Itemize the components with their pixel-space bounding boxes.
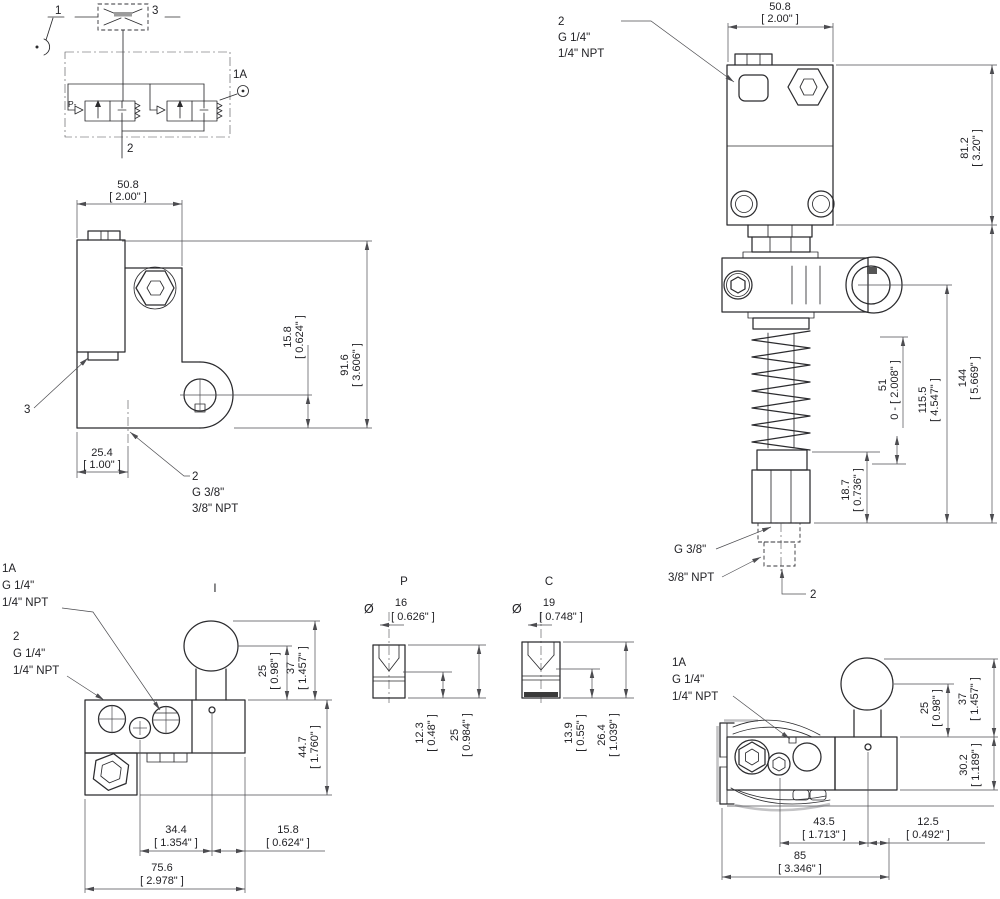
side-callout-3: 3 [24, 404, 30, 416]
rear-view: 1A G 1/4" 1/4" NPT 25 [ 0.98" ] 37 [ 1.4… [672, 657, 998, 880]
dim-front-width-mm: 50.8 [769, 1, 790, 13]
drawing-page: 1 3 P- 1A [0, 0, 1000, 899]
dim-top-ballc-mm: 25 [257, 665, 269, 677]
dim-front-total-mm: 144 [957, 369, 969, 387]
valve-body [727, 65, 833, 225]
top-callout-1a-l2: G 1/4" [2, 580, 34, 592]
dim-rear-width-in: [ 3.346" ] [778, 863, 822, 875]
schematic-item-2: 2 [127, 143, 133, 155]
dim-front-nut-mm: 18.7 [840, 479, 852, 500]
dim-c-height-mm: 26.4 [596, 724, 608, 745]
dim-c-seat-in: [ 0.55" ] [575, 714, 587, 752]
dim-top-width-mm: 75.6 [151, 862, 172, 874]
dim-c-height-in: [ 1.039" ] [608, 713, 620, 757]
dim-top-ballc-in: [ 0.98" ] [269, 652, 281, 690]
dim-side-hole-in: [ 0.624" ] [294, 315, 306, 359]
c-dia-symbol: Ø [512, 602, 522, 616]
p-port-detail: P Ø 16 [ 0.626" ] 12.3 [ 0.48" ] 25 [ 0.… [364, 576, 486, 757]
p-dia-in: [ 0.626" ] [391, 611, 435, 623]
dim-c-seat-mm: 13.9 [563, 722, 575, 743]
front-callout-2-l3: 1/4" NPT [558, 48, 604, 60]
front-port-npt38: 3/8" NPT [668, 572, 714, 584]
top-lever-label: I [213, 583, 216, 595]
dim-side-height-mm: 91.6 [339, 354, 351, 375]
dim-top-body-mm: 44.7 [297, 736, 309, 757]
dim-rear-offset-mm: 43.5 [813, 816, 834, 828]
dim-side-base-mm: 25.4 [91, 447, 112, 459]
dim-rear-ballc-in: [ 0.98" ] [931, 689, 943, 727]
hex-plug [788, 69, 828, 105]
dim-side-base-in: [ 1.00" ] [83, 459, 121, 471]
ball-knob [184, 621, 238, 671]
adjuster-nut [752, 470, 810, 523]
schematic-port-p: P- [68, 99, 77, 109]
dim-front-mid-in: [ 4.547" ] [929, 378, 941, 422]
front-callout-2b: 2 [810, 589, 816, 601]
mount-bolt-hex [136, 271, 174, 305]
side-callout-2-l3: 3/8" NPT [192, 503, 238, 515]
dim-top-width-in: [ 2.978" ] [140, 875, 184, 887]
dim-front-stroke-in: 0 - [ 2.008" ] [889, 360, 901, 420]
front-port-g38: G 3/8" [674, 544, 706, 556]
side-view: 50.8 [ 2.00" ] 91.6 [ 3.606" ] 15.8 [ 0.… [24, 179, 372, 515]
key-notch [867, 267, 877, 274]
side-callout-2-l1: 2 [192, 471, 198, 483]
hydraulic-schematic: 1 3 P- 1A [36, 4, 249, 158]
dim-p-height-mm: 25 [449, 729, 461, 741]
dim-front-width-in: [ 2.00" ] [761, 13, 799, 25]
throttle-bar [114, 12, 132, 17]
rear-callout-1a-l1: 1A [672, 657, 686, 669]
c-label: C [545, 576, 553, 588]
rear-port [793, 743, 821, 771]
dim-top-edge-mm: 15.8 [277, 824, 298, 836]
top-callout-2-l1: 2 [13, 631, 19, 643]
dim-side-width-in: [ 2.00" ] [109, 191, 147, 203]
assembly-boundary [65, 52, 230, 137]
dim-front-total-in: [ 5.669" ] [969, 356, 981, 400]
dim-side-height-in: [ 3.606" ] [351, 343, 363, 387]
dim-front-mid-mm: 115.5 [917, 387, 929, 414]
dim-p-height-in: [ 0.984" ] [461, 713, 473, 757]
dim-rear-ballt-mm: 37 [957, 693, 969, 705]
seal-band [524, 692, 558, 697]
dim-p-seat-in: [ 0.48" ] [426, 714, 438, 752]
side-callout-2-l2: G 3/8" [192, 487, 224, 499]
spring [752, 331, 810, 450]
port-plug-square [739, 75, 768, 101]
bottom-hex-plug [92, 751, 130, 792]
dim-side-hole-mm: 15.8 [282, 326, 294, 347]
top-view: 1A G 1/4" 1/4" NPT 2 G 1/4" 1/4" NPT I 2… [2, 563, 332, 893]
top-callout-2-l3: 1/4" NPT [13, 665, 59, 677]
mount-washer [134, 267, 176, 309]
dim-rear-ballt-in: [ 1.457" ] [969, 677, 981, 721]
dim-rear-offset-in: [ 1.713" ] [802, 829, 846, 841]
dim-rear-pin-mm: 12.5 [917, 816, 938, 828]
dim-front-nut-in: [ 0.736" ] [852, 468, 864, 512]
dim-rear-body-mm: 30.2 [958, 754, 970, 775]
dim-top-ballt-mm: 37 [285, 662, 297, 674]
dim-rear-width-mm: 85 [794, 850, 806, 862]
dim-rear-ballc-mm: 25 [919, 702, 931, 714]
rear-ball-knob [841, 658, 893, 710]
valve-technical-drawing: 1 3 P- 1A [0, 0, 1000, 899]
rear-callout-1a-l3: 1/4" NPT [672, 691, 718, 703]
pilot-valve-left: P- [68, 99, 140, 121]
front-callout-2-l1: 2 [558, 16, 564, 28]
front-view: 2 G 1/4" 1/4" NPT 50.8 [ 2.00" ] 81.2 [ … [558, 1, 997, 601]
p-dia-symbol: Ø [364, 602, 374, 616]
pilot-valve-right [150, 100, 222, 121]
dim-top-pitch-mm: 34.4 [165, 824, 186, 836]
p-dia-mm: 16 [395, 597, 407, 609]
top-callout-1a-l3: 1/4" NPT [2, 597, 48, 609]
dim-front-body-mm: 81.2 [959, 137, 971, 158]
rear-callout-1a-l2: G 1/4" [672, 674, 704, 686]
dim-top-ballt-in: [ 1.457" ] [297, 646, 309, 690]
rear-hex-plug [735, 740, 769, 774]
c-dia-mm: 19 [543, 597, 555, 609]
dim-top-edge-in: [ 0.624" ] [266, 837, 310, 849]
rear-socket-screw [768, 753, 790, 775]
dim-top-pitch-in: [ 1.354" ] [154, 837, 198, 849]
p-label: P [400, 576, 408, 588]
schematic-item-1: 1 [55, 5, 61, 17]
dim-rear-body-in: [ 1.189" ] [970, 743, 982, 787]
dim-rear-pin-in: [ 0.492" ] [906, 829, 950, 841]
dim-p-seat-mm: 12.3 [414, 722, 426, 743]
dim-front-stroke-mm: 51 [877, 379, 889, 391]
front-callout-2-l2: G 1/4" [558, 32, 590, 44]
c-dia-in: [ 0.748" ] [539, 611, 583, 623]
schematic-item-1a: 1A [233, 69, 247, 81]
dim-side-width-mm: 50.8 [117, 179, 138, 191]
top-callout-1a-l1: 1A [2, 563, 16, 575]
c-port-detail: C Ø 19 [ 0.748" ] 13.9 [ 0.55" ] 26.4 [ … [512, 576, 634, 757]
dim-front-body-in: [ 3.20" ] [971, 129, 983, 167]
top-callout-2-l2: G 1/4" [13, 648, 45, 660]
schematic-item-3: 3 [152, 5, 158, 17]
dim-top-body-in: [ 1.760" ] [309, 725, 321, 769]
valve-body-top [85, 700, 245, 753]
